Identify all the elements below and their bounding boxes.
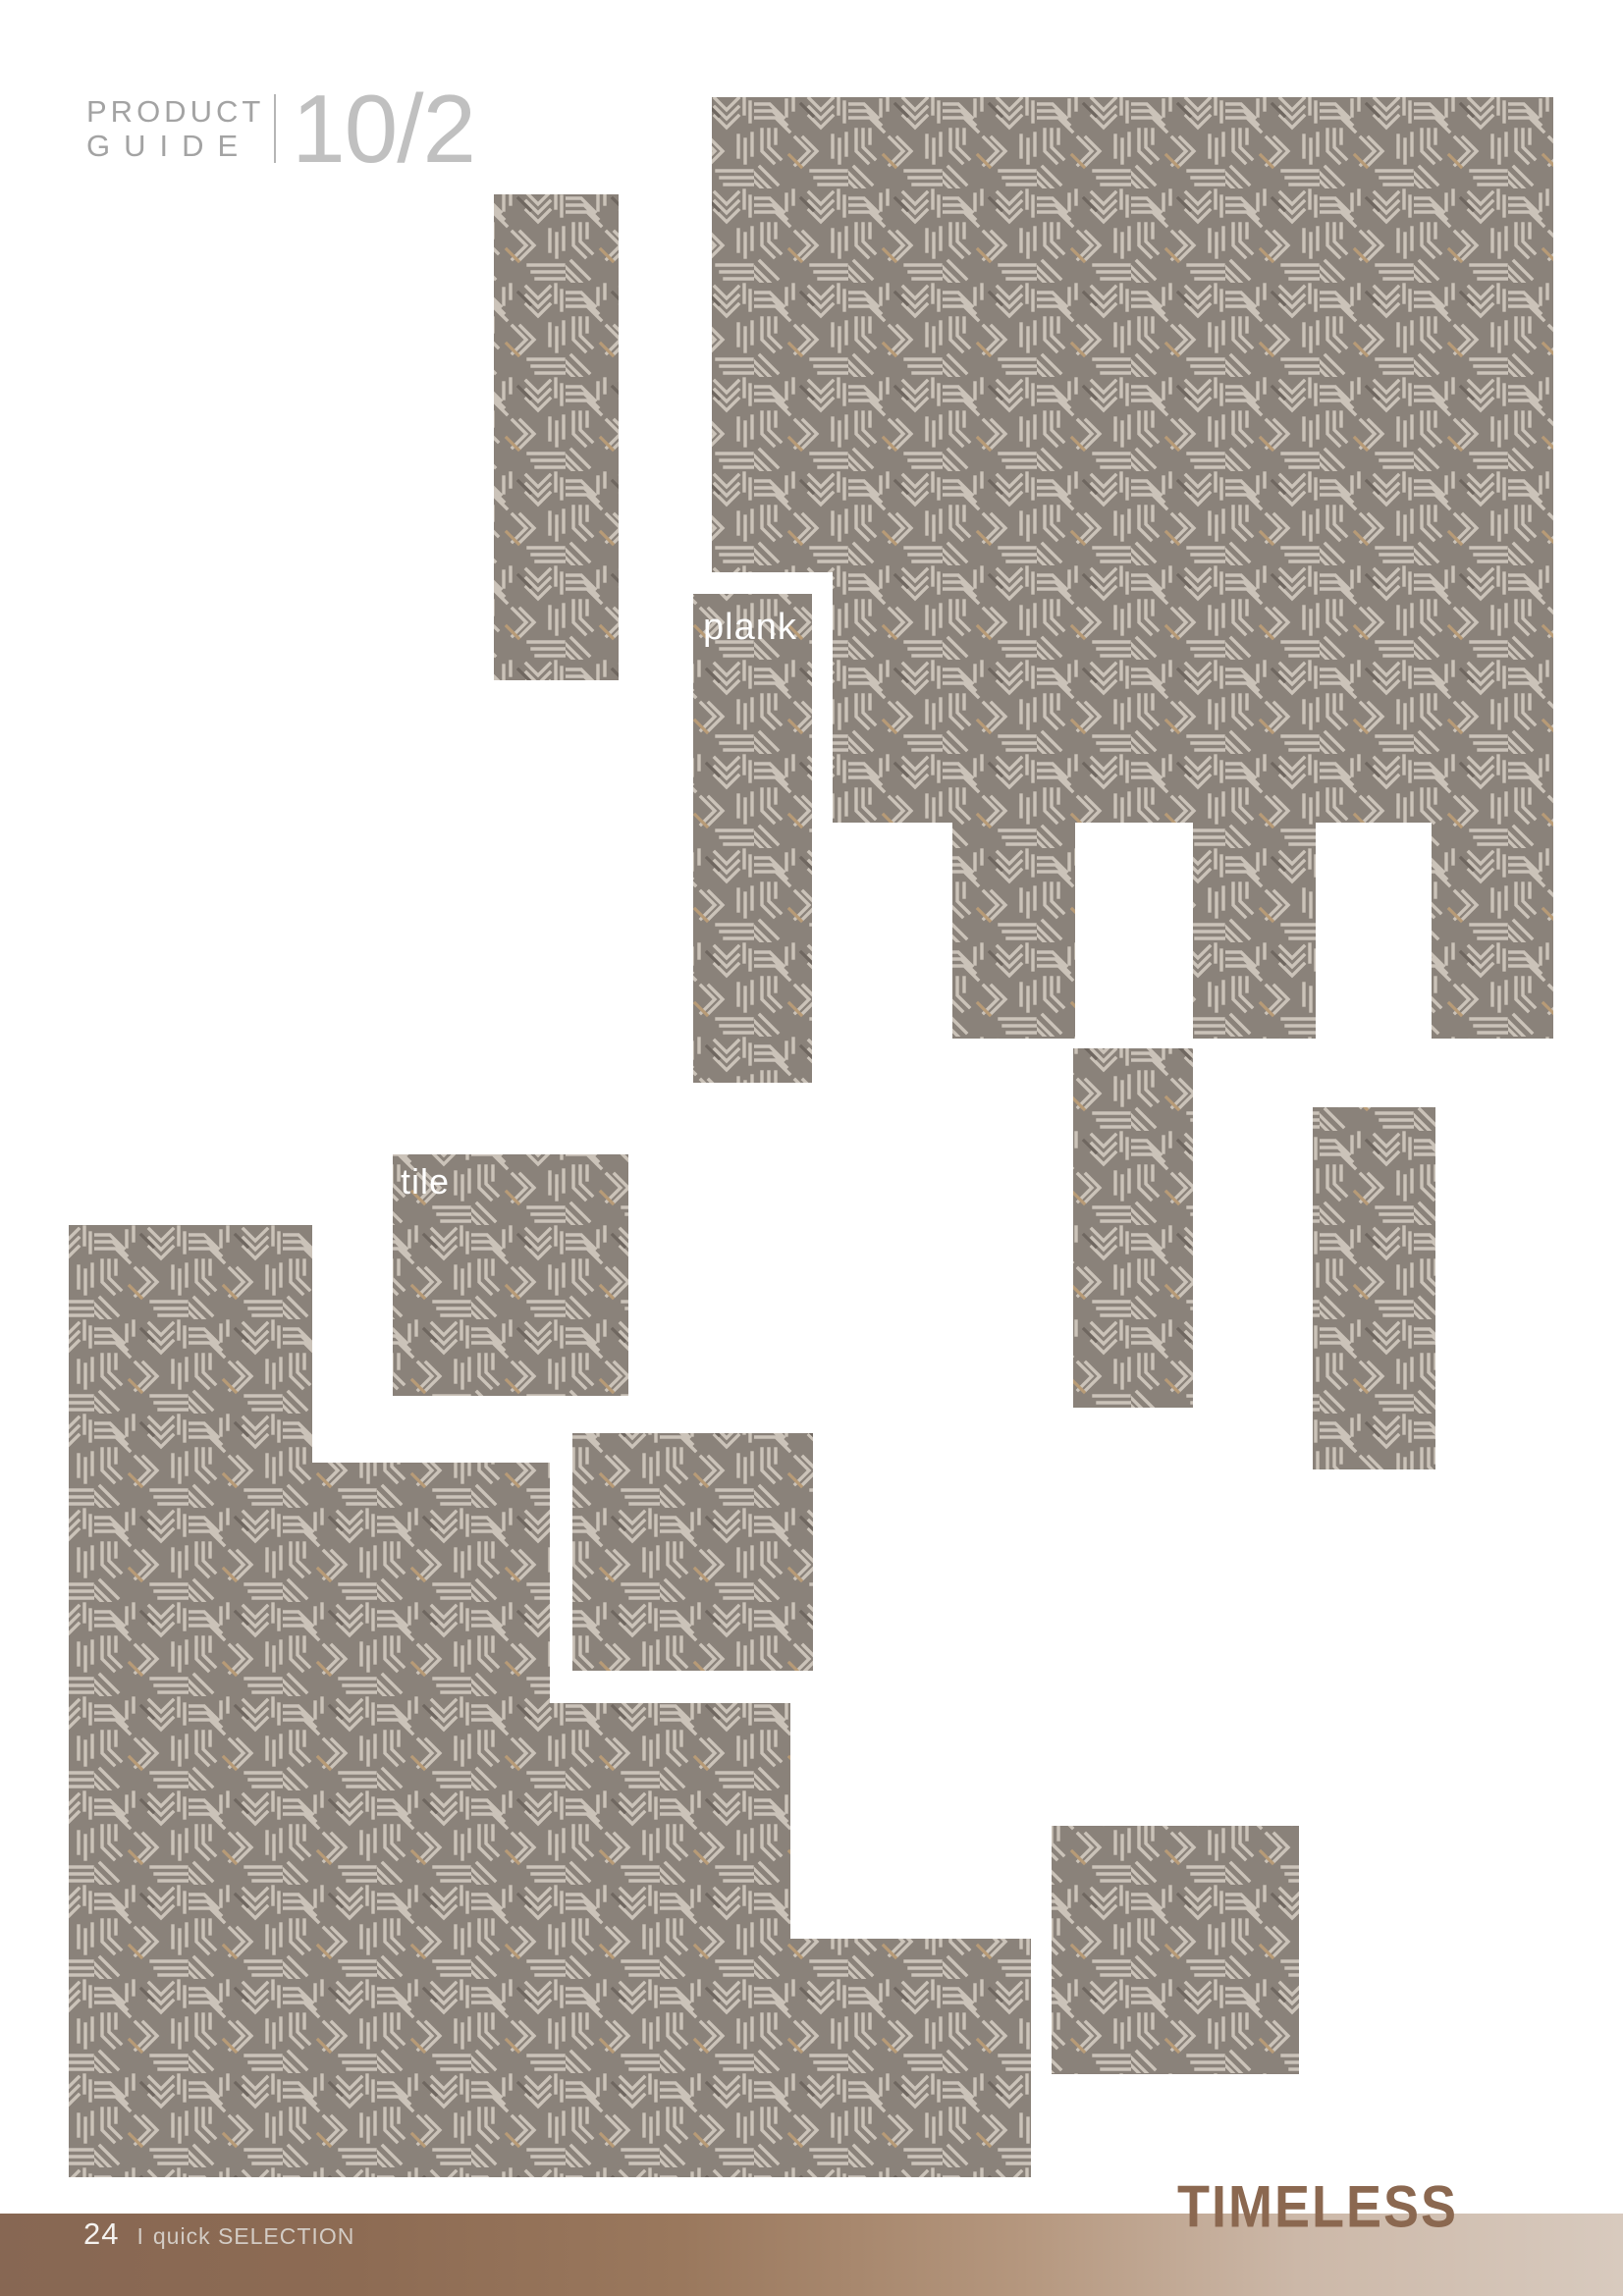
footer-page-info: 24 I quick SELECTION <box>83 2216 354 2252</box>
carpet-collage <box>0 0 1623 2296</box>
plank-label: plank <box>703 609 797 646</box>
carpet-swatch-bottom-right-square <box>1052 1826 1299 2074</box>
page-number: 24 <box>83 2216 119 2252</box>
tile-label: tile <box>401 1164 450 1200</box>
footer-separator: I <box>136 2223 142 2250</box>
carpet-swatch-large-top-block <box>712 97 1553 1039</box>
carpet-swatch-middle-right-strip <box>1073 1048 1193 1408</box>
carpet-swatch-right-strip <box>1313 1107 1435 1469</box>
carpet-swatch-top-strip <box>494 194 619 680</box>
footer-caption: quick SELECTION <box>153 2223 354 2250</box>
brand-logo: TIMELESS <box>1177 2177 1458 2236</box>
carpet-swatch-center-square <box>572 1433 813 1671</box>
product-guide-page: PRODUCT GUIDE 10/2 <box>0 0 1623 2296</box>
carpet-swatch-plank-strip <box>693 594 812 1083</box>
